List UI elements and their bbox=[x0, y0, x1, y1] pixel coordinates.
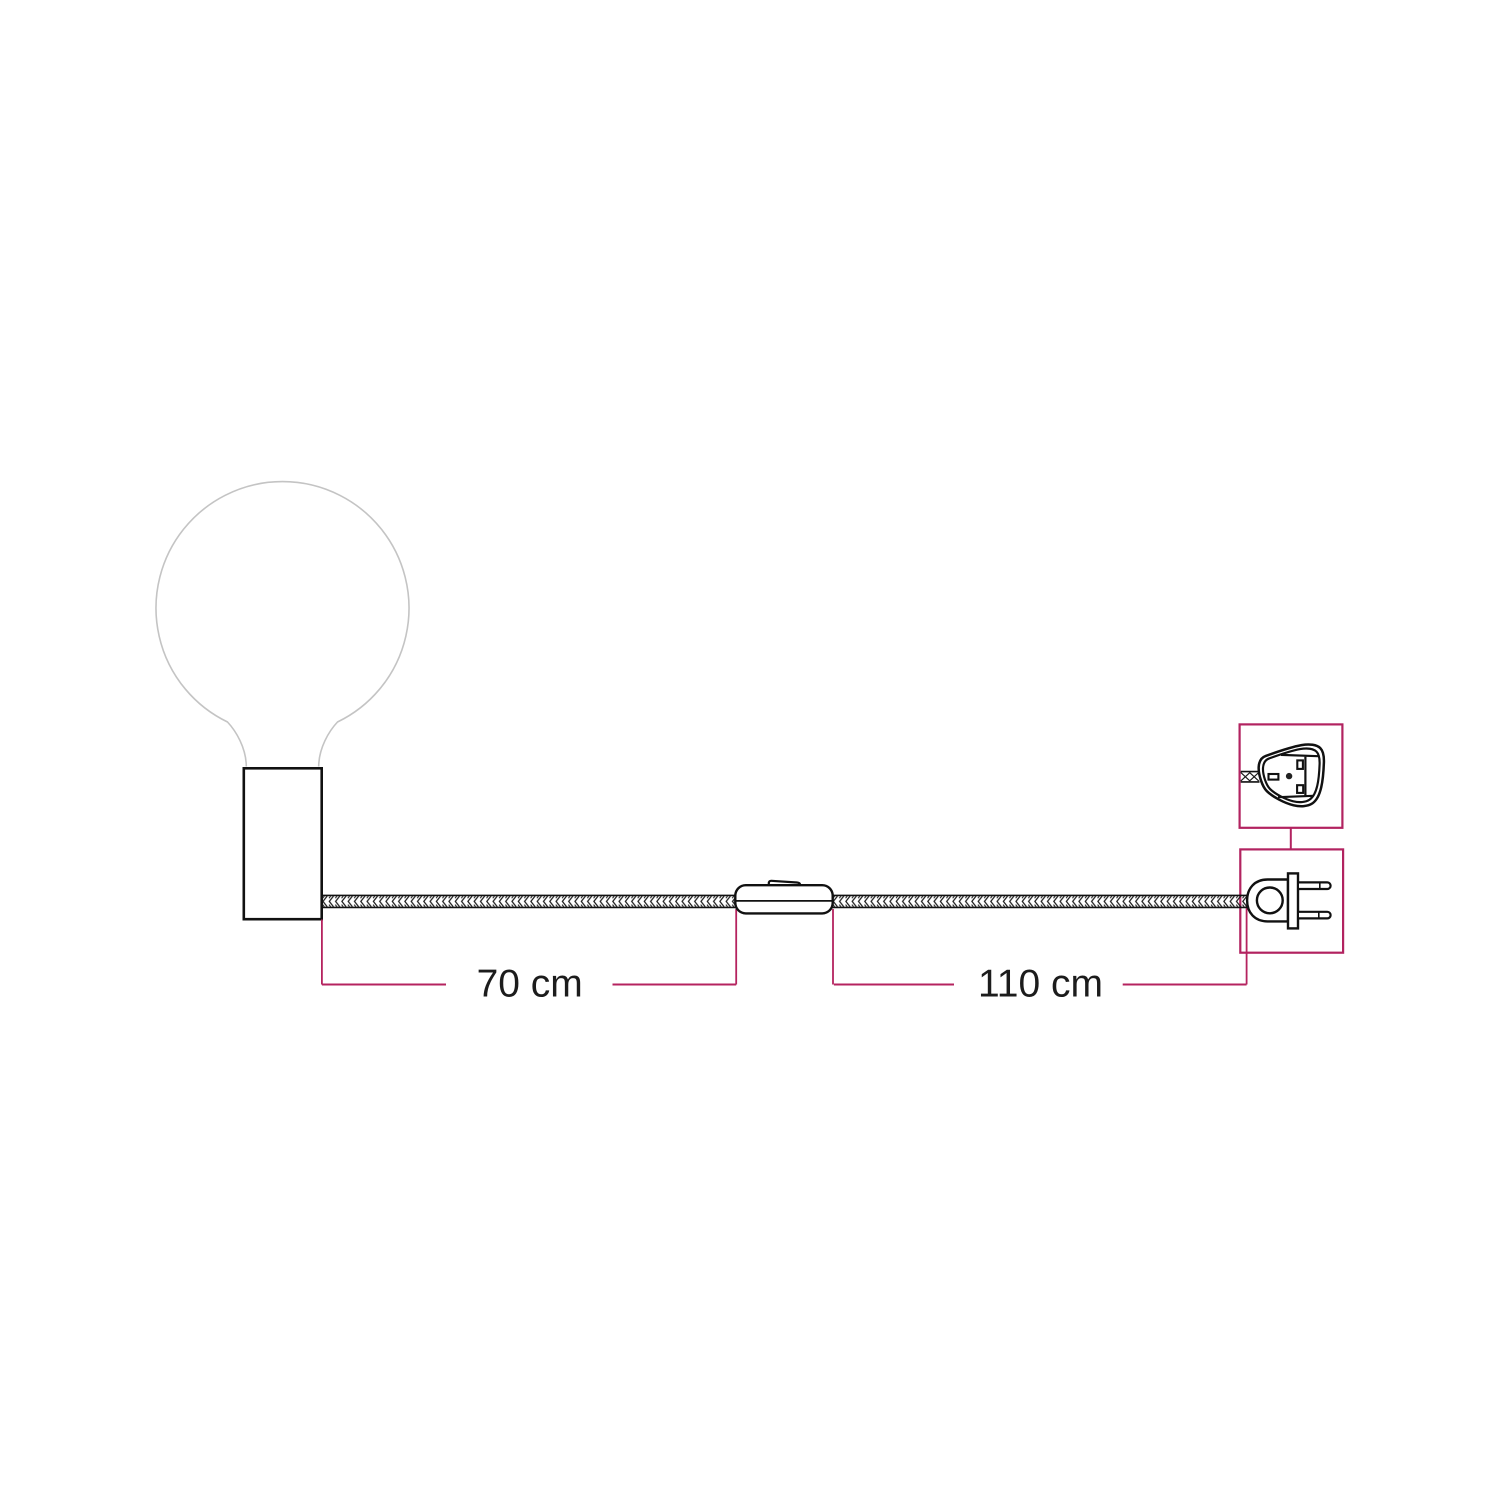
svg-text:70 cm: 70 cm bbox=[477, 963, 583, 1006]
svg-text:110 cm: 110 cm bbox=[978, 963, 1103, 1006]
